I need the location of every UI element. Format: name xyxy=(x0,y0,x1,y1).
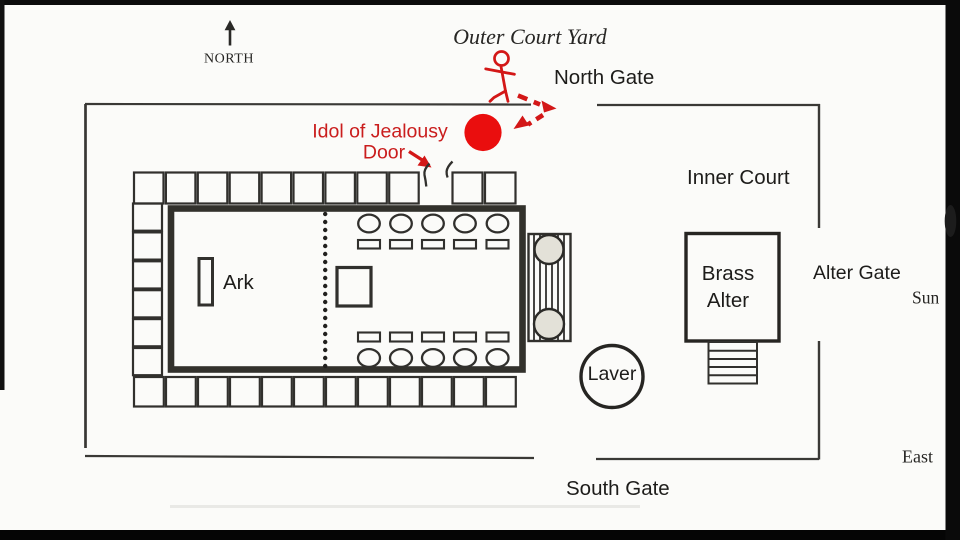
svg-text:Outer Court Yard: Outer Court Yard xyxy=(453,24,608,49)
svg-text:Brass: Brass xyxy=(702,262,754,285)
svg-text:South Gate: South Gate xyxy=(566,477,670,500)
svg-text:Inner Court: Inner Court xyxy=(687,166,790,189)
svg-text:Alter Gate: Alter Gate xyxy=(813,262,901,284)
svg-text:Laver: Laver xyxy=(588,363,637,385)
svg-text:East: East xyxy=(902,447,933,467)
svg-text:Alter: Alter xyxy=(707,289,749,312)
svg-text:North Gate: North Gate xyxy=(554,66,654,89)
svg-text:Idol of Jealousy: Idol of Jealousy xyxy=(312,121,448,143)
svg-text:Door: Door xyxy=(363,142,406,164)
svg-text:NORTH: NORTH xyxy=(204,52,254,67)
svg-text:Ark: Ark xyxy=(223,271,255,294)
svg-text:Sun: Sun xyxy=(912,288,939,308)
